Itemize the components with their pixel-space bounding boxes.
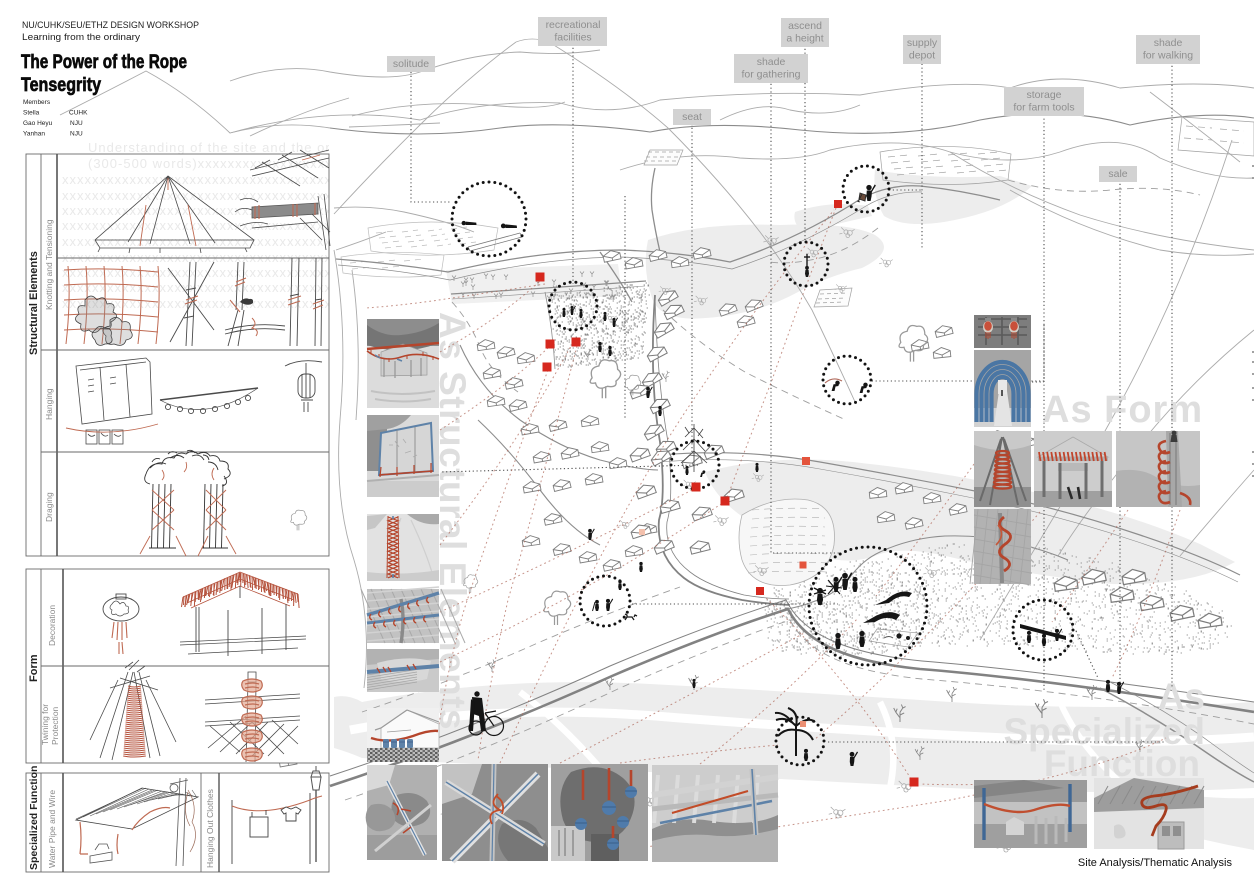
svg-text:Stella: Stella — [23, 110, 40, 117]
svg-text:As Form: As Form — [1042, 389, 1203, 431]
svg-text:supply: supply — [907, 37, 938, 49]
svg-text:recreational: recreational — [546, 19, 601, 31]
svg-text:NJU: NJU — [70, 120, 83, 127]
svg-text:for gathering: for gathering — [742, 69, 801, 81]
svg-text:Gao Heyu: Gao Heyu — [23, 120, 53, 127]
svg-text:Yanhan: Yanhan — [23, 131, 45, 138]
svg-text:NJU: NJU — [70, 131, 83, 138]
svg-text:ascend: ascend — [788, 20, 822, 32]
svg-text:Members: Members — [23, 99, 51, 106]
svg-text:CUHK: CUHK — [69, 110, 88, 117]
svg-text:Twining for: Twining for — [40, 704, 50, 745]
svg-text:Knotting and Tensioning: Knotting and Tensioning — [44, 219, 54, 310]
svg-text:Hanging: Hanging — [44, 388, 54, 420]
svg-text:xxxxxxxxxxxxxxxxxxxxxxxxxxxxxx: xxxxxxxxxxxxxxxxxxxxxxxxxxxxxxxxxxxxxxx — [62, 188, 355, 203]
svg-text:Draging: Draging — [44, 492, 54, 522]
svg-text:facilities: facilities — [554, 32, 591, 44]
svg-text:solitude: solitude — [393, 58, 429, 70]
svg-text:a height: a height — [786, 33, 823, 45]
svg-text:Hanging Out Clothes: Hanging Out Clothes — [205, 789, 215, 868]
svg-text:shade: shade — [1154, 37, 1183, 49]
svg-text:sale: sale — [1108, 168, 1127, 180]
svg-text:xxxxxxxxxxxxxxxxxxxxxxxxxxxxxx: xxxxxxxxxxxxxxxxxxxxxxxxxxxxxxxxxxxxxxx — [62, 234, 355, 249]
svg-text:Tensegrity: Tensegrity — [21, 74, 101, 96]
svg-text:xxxxxxxxxxxxxxxxxxxxxxxxxxxxxx: xxxxxxxxxxxxxxxxxxxxxxxxxxxxxxxxxxxxxxx — [62, 250, 355, 265]
svg-text:Site Analysis/Thematic Analysi: Site Analysis/Thematic Analysis — [1078, 857, 1233, 869]
svg-text:Function: Function — [1044, 743, 1200, 784]
svg-text:xxxxxxxxxxxxxxxxxxxxxxxxxxxxxx: xxxxxxxxxxxxxxxxxxxxxxxxxxxxxxxxxxxxxxx — [62, 280, 355, 295]
svg-text:for farm tools: for farm tools — [1013, 102, 1074, 114]
svg-text:Structural Elements: Structural Elements — [28, 251, 40, 355]
svg-text:shade: shade — [757, 56, 786, 68]
svg-text:depot: depot — [909, 50, 935, 62]
svg-text:seat: seat — [682, 111, 702, 123]
svg-text:Decoration: Decoration — [47, 605, 57, 646]
svg-text:Learning from the ordinary: Learning from the ordinary — [22, 32, 140, 43]
svg-text:NU/CUHK/SEU/ETHZ DESIGN WORKSH: NU/CUHK/SEU/ETHZ DESIGN WORKSHOP — [22, 20, 199, 31]
svg-text:Specialized Function: Specialized Function — [28, 766, 40, 870]
svg-text:for walking: for walking — [1143, 50, 1193, 62]
svg-text:Water Pipe and Wire: Water Pipe and Wire — [47, 790, 57, 868]
svg-text:xxxxxxxxxxxxxxxxxxxxxxxxxxxxxx: xxxxxxxxxxxxxxxxxxxxxxxxxxxxxxxxxxxxxxx — [62, 172, 355, 187]
svg-text:storage: storage — [1026, 89, 1061, 101]
svg-text:Form: Form — [28, 654, 40, 682]
svg-text:The Power of the Rope: The Power of the Rope — [21, 51, 187, 73]
svg-text:Protection: Protection — [50, 706, 60, 745]
